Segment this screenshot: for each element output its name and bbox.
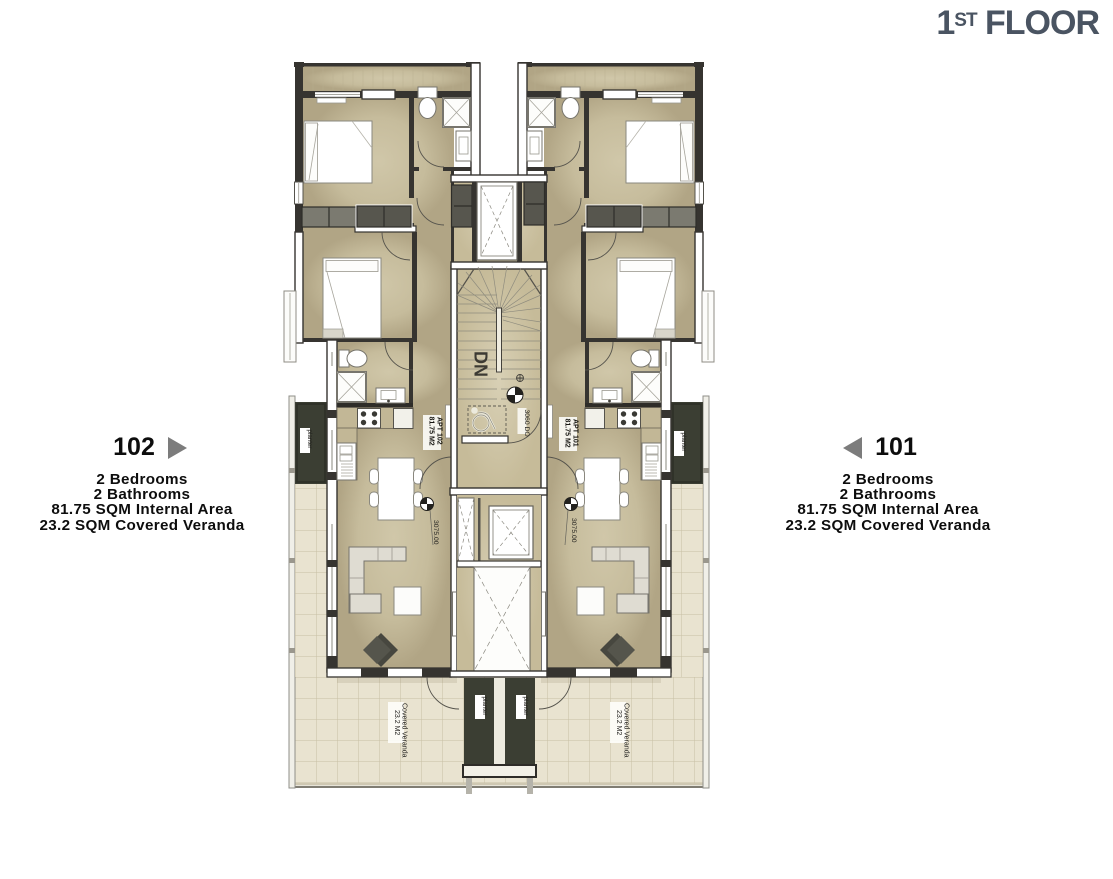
svg-text:23.2 M2: 23.2 M2 bbox=[393, 710, 400, 735]
svg-text:81.75 M2: 81.75 M2 bbox=[428, 417, 435, 446]
svg-text:3075.00: 3075.00 bbox=[570, 518, 577, 543]
svg-text:3060 DO: 3060 DO bbox=[523, 410, 530, 437]
svg-text:Covered Veranda: Covered Veranda bbox=[623, 703, 630, 758]
svg-text:APT 101: APT 101 bbox=[572, 419, 579, 447]
svg-text:APT 102: APT 102 bbox=[436, 417, 443, 445]
svg-text:23.2 M2: 23.2 M2 bbox=[615, 710, 622, 735]
svg-text:planter: planter bbox=[306, 430, 313, 449]
svg-text:planter: planter bbox=[680, 433, 687, 452]
svg-text:planter: planter bbox=[481, 697, 488, 716]
svg-text:DN: DN bbox=[471, 351, 491, 377]
svg-text:81.75 M2: 81.75 M2 bbox=[564, 419, 571, 448]
svg-text:planter: planter bbox=[522, 697, 529, 716]
svg-text:Covered Veranda: Covered Veranda bbox=[401, 703, 408, 758]
svg-text:3075.00: 3075.00 bbox=[432, 520, 439, 545]
